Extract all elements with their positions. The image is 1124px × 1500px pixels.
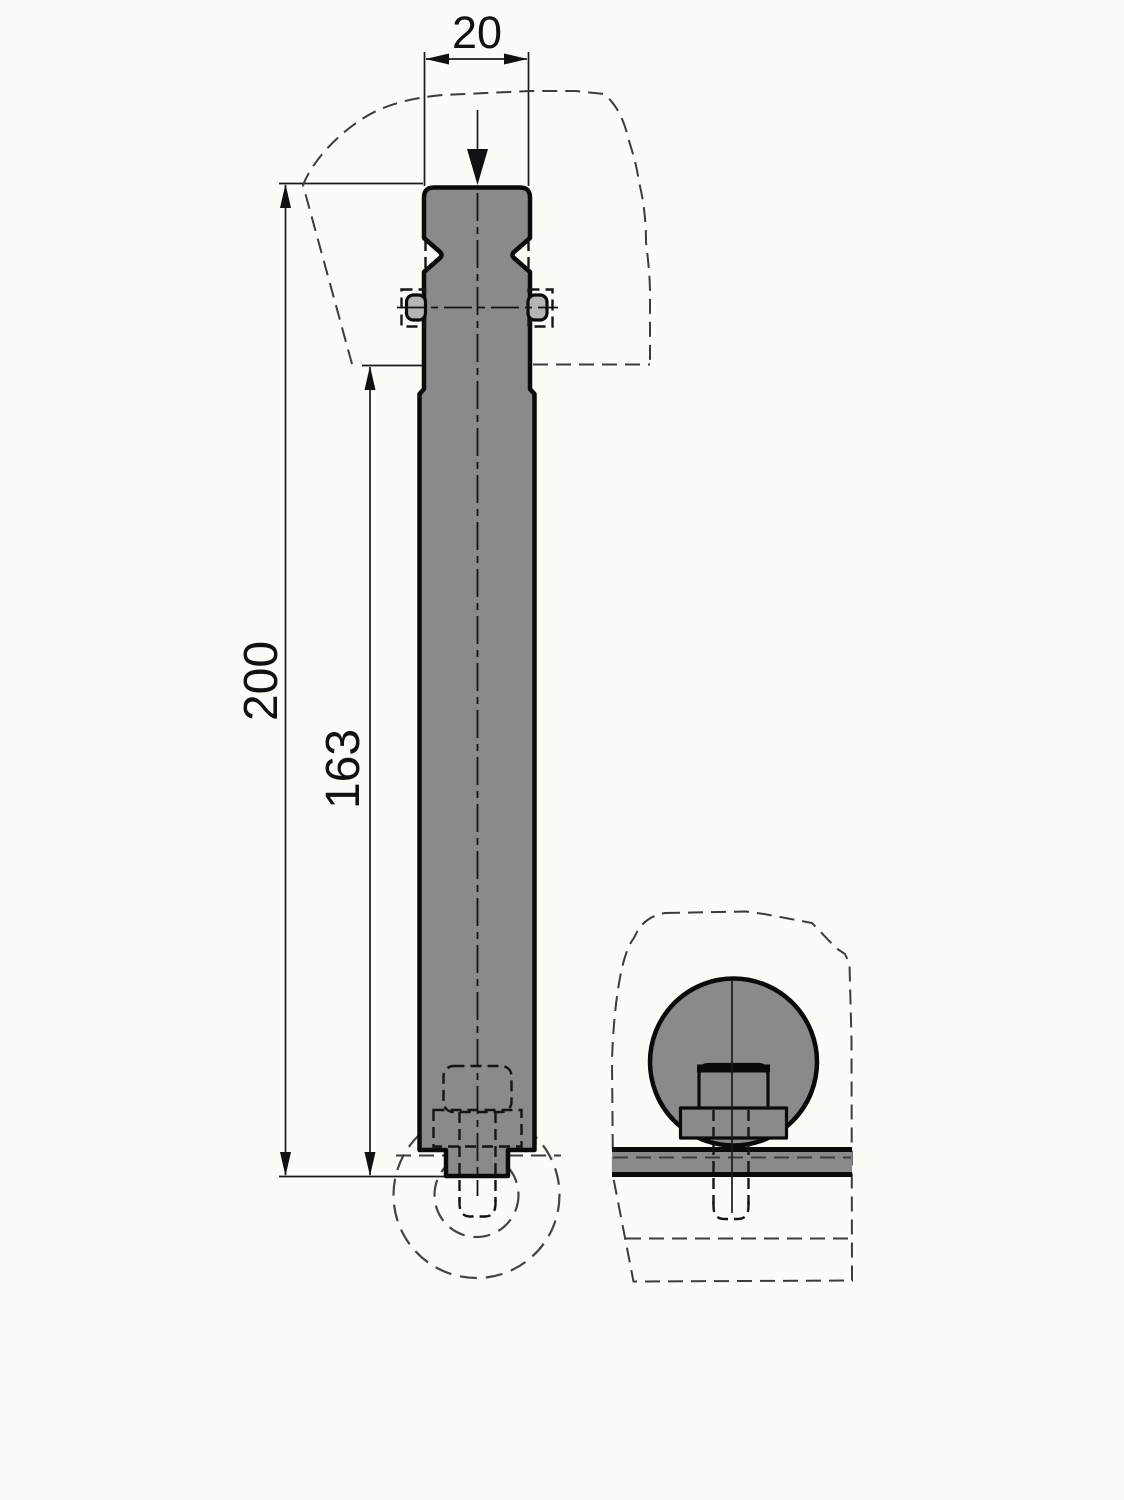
- technical-drawing-canvas: 20 200 163: [0, 0, 1124, 1500]
- bolt-washer-flange: [681, 1108, 787, 1138]
- drawing-background: [0, 0, 1124, 1500]
- dim-shaft-label: 163: [317, 729, 370, 809]
- dim-width-label: 20: [452, 7, 502, 58]
- dim-length-label: 200: [235, 641, 288, 721]
- drawing-svg: 20 200 163: [0, 0, 1124, 1500]
